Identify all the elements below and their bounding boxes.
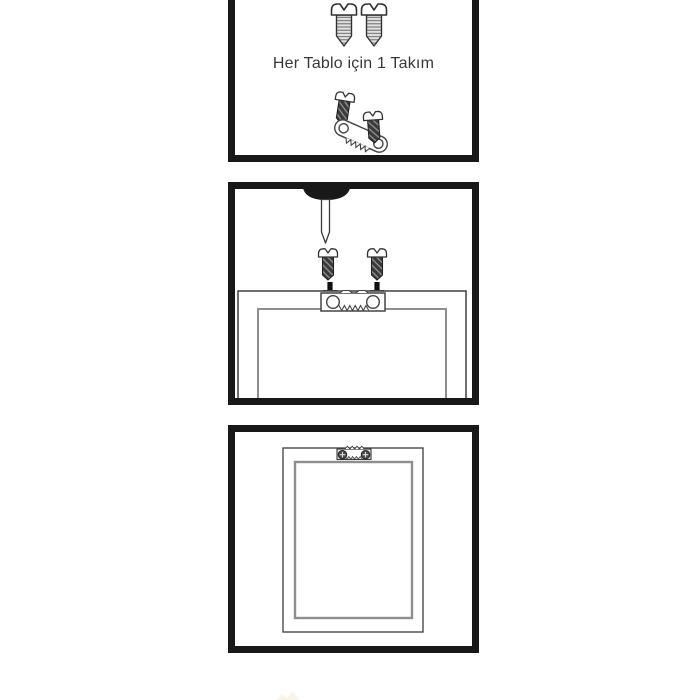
watermark-mark (276, 691, 299, 700)
sawtooth-hanger-icon (330, 117, 389, 155)
phillips-screw-icon (338, 450, 347, 459)
kit-caption: Her Tablo için 1 Takım (235, 54, 472, 74)
phillips-screw-icon (361, 450, 370, 459)
small-screw-icon (319, 249, 338, 280)
large-screw-icon (362, 4, 387, 46)
instruction-sheet: Her Tablo için 1 Takım (0, 0, 700, 700)
panel-step-3-mounted (228, 425, 479, 653)
sawtooth-hanger-icon (321, 291, 385, 312)
frame-inner-edge (295, 462, 412, 618)
attach-illustration (235, 189, 472, 398)
panel-step-1-kit: Her Tablo için 1 Takım (228, 0, 479, 162)
large-screw-icon (332, 4, 357, 46)
panel-step-2-attach-hanger (228, 182, 479, 405)
mounted-illustration (235, 432, 472, 646)
small-screw-icon (368, 249, 387, 280)
kit-illustration (235, 0, 472, 155)
nail-icon (303, 189, 350, 243)
frame-inner-edge (258, 309, 446, 398)
